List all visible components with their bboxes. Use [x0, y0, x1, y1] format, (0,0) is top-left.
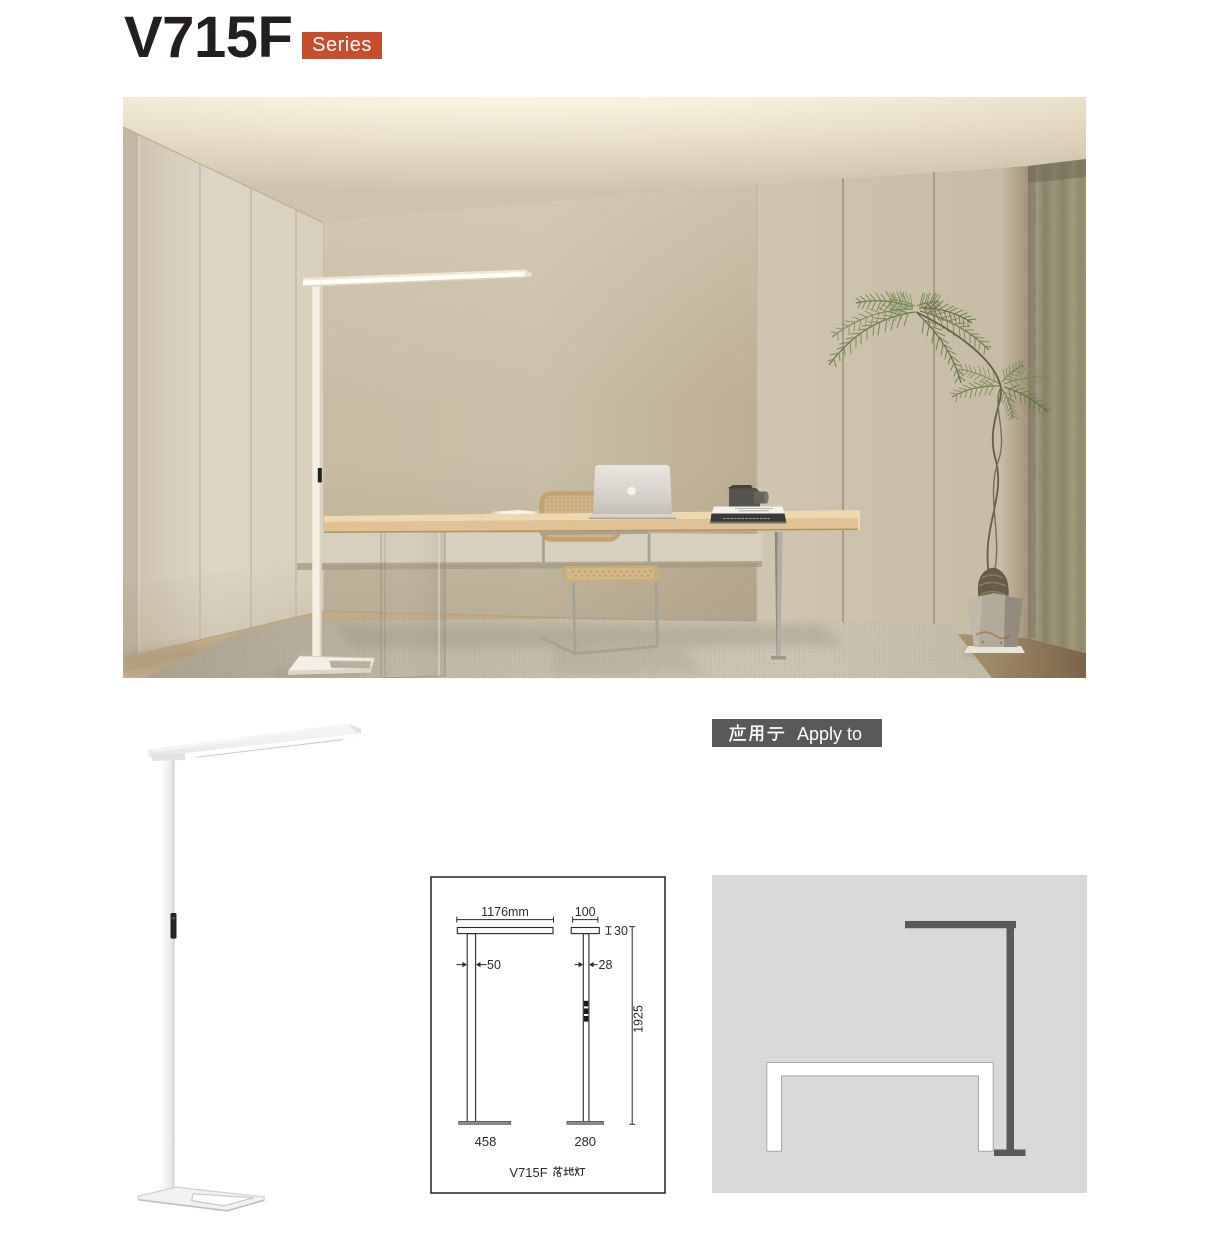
svg-text:458: 458 — [475, 1134, 497, 1149]
svg-text:Apply to: Apply to — [797, 724, 862, 744]
svg-text:50: 50 — [487, 958, 501, 972]
svg-text:V715F: V715F — [509, 1165, 547, 1180]
svg-text:1925: 1925 — [632, 1005, 646, 1033]
svg-text:30: 30 — [614, 924, 628, 938]
svg-text:280: 280 — [574, 1134, 596, 1149]
svg-text:1176mm: 1176mm — [481, 905, 529, 919]
svg-text:100: 100 — [575, 905, 596, 919]
svg-text:28: 28 — [599, 958, 613, 972]
